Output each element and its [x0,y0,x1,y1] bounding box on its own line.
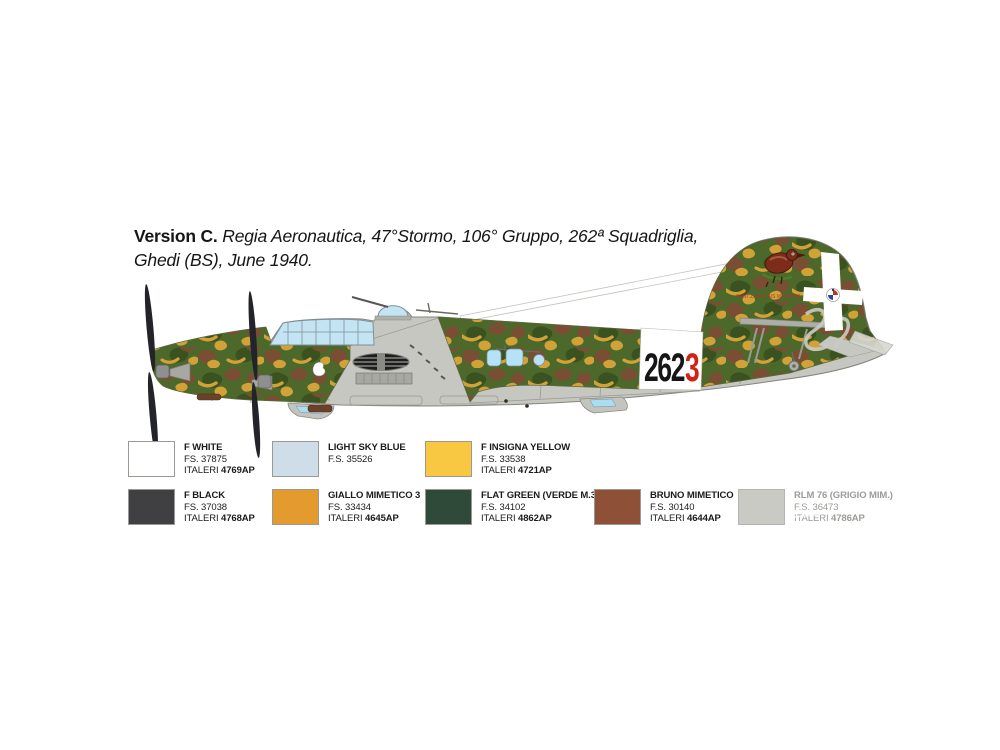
paint-name: BRUNO MIMETICO [650,490,734,502]
exhaust-pipe [197,394,221,400]
paint-name: LIGHT SKY BLUE [328,442,406,454]
paint-swatch [272,441,319,477]
nose-propeller [143,284,190,458]
brand-label: ITALERI [184,465,219,476]
paint-swatch-entry: RLM 76 (GRIGIO MIM.) F.S. 36473 ITALERI … [738,489,893,525]
brand-code: 4644AP [687,513,721,524]
brand-label: ITALERI [481,465,516,476]
propeller-blade [143,284,157,372]
paint-swatch [738,489,785,525]
paint-fs-code: FS. 37038 [184,502,255,514]
paint-swatch [128,489,175,525]
paint-name: F WHITE [184,442,255,454]
paint-swatch [594,489,641,525]
brand-label: ITALERI [184,513,219,524]
exhaust-pipe [308,405,332,412]
paint-brand-code: ITALERI 4768AP [184,513,255,525]
belly-porthole [525,404,529,408]
paint-brand-code: ITALERI 4769AP [184,465,255,477]
paint-swatch-entry: GIALLO MIMETICO 3 FS. 33434 ITALERI 4645… [272,489,420,525]
brand-code: 4768AP [221,513,255,524]
paint-fs-code: F.S. 30140 [650,502,734,514]
paint-swatch-entry: LIGHT SKY BLUE F.S. 35526 [272,441,406,477]
paint-fs-code: F.S. 35526 [328,454,406,466]
brand-code: 4769AP [221,465,255,476]
dorsal-turret [352,297,411,320]
paint-swatch-entry: FLAT GREEN (VERDE M.3) F.S. 34102 ITALER… [425,489,599,525]
brand-code: 4786AP [831,513,865,524]
paint-swatch-entry: BRUNO MIMETICO F.S. 30140 ITALERI 4644AP [594,489,734,525]
belly-porthole [504,399,508,403]
paint-fs-code: FS. 37875 [184,454,255,466]
brand-label: ITALERI [481,513,516,524]
paint-name: F INSIGNA YELLOW [481,442,570,454]
instruction-sheet-page: Version C. Regia Aeronautica, 47°Stormo,… [0,0,1000,750]
brand-code: 4862AP [518,513,552,524]
paint-swatch-entry: F BLACK FS. 37038 ITALERI 4768AP [128,489,255,525]
paint-fs-code: FS. 33434 [328,502,420,514]
brand-label: ITALERI [650,513,685,524]
wing-emblem [313,362,325,376]
fuselage-band: 262 3 [639,328,703,390]
brand-label: ITALERI [328,513,363,524]
turret-gun-barrel [352,297,388,307]
aircraft-profile-illustration: 262 3 [0,0,1000,750]
paint-swatch [128,441,175,477]
paint-brand-code: ITALERI 4721AP [481,465,570,477]
far-wing-edge [460,261,743,322]
paint-brand-code: ITALERI 4862AP [481,513,599,525]
paint-swatch [272,489,319,525]
paint-name: GIALLO MIMETICO 3 [328,490,420,502]
paint-swatch-entry: F INSIGNA YELLOW F.S. 33538 ITALERI 4721… [425,441,570,477]
paint-fs-code: F.S. 34102 [481,502,599,514]
squadron-code-text: 262 [644,346,685,391]
paint-swatch [425,441,472,477]
paint-brand-code: ITALERI 4644AP [650,513,734,525]
paint-fs-code: F.S. 33538 [481,454,570,466]
paint-swatch-entry: F WHITE FS. 37875 ITALERI 4769AP [128,441,255,477]
paint-name: FLAT GREEN (VERDE M.3) [481,490,599,502]
fin-serial-text: CANT.Z.1007 BIS MM 23459 [736,294,801,300]
brand-code: 4721AP [518,465,552,476]
spine-antenna [416,303,458,314]
cockpit-canopy [270,319,374,345]
paint-swatch [425,489,472,525]
ventral-gondola-rear [580,397,627,413]
aircraft-number-text: 3 [685,346,700,391]
paint-name: RLM 76 (GRIGIO MIM.) [794,490,893,502]
paint-brand-code: ITALERI 4645AP [328,513,420,525]
paint-name: F BLACK [184,490,255,502]
brand-code: 4645AP [365,513,399,524]
